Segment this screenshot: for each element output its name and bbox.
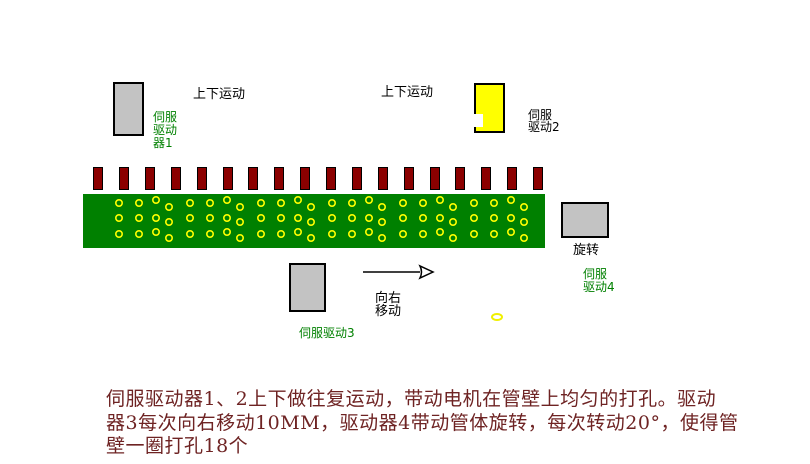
- stray-oval-mark: [491, 313, 503, 321]
- drill-hole: [437, 215, 443, 221]
- drill-hole: [349, 231, 355, 237]
- drill-hole: [153, 215, 159, 221]
- drill-bit-bar: [93, 167, 103, 190]
- drill-hole: [295, 215, 301, 221]
- drill-hole: [237, 204, 243, 210]
- drill-hole: [521, 204, 527, 210]
- servo4-name-label: 伺服 驱动4: [583, 268, 615, 294]
- drill-hole: [207, 200, 213, 206]
- drill-hole: [420, 231, 426, 237]
- drill-hole: [258, 231, 264, 237]
- drill-hole: [207, 231, 213, 237]
- drill-hole: [224, 215, 230, 221]
- description-text: 伺服驱动器1、2上下做往复运动，带动电机在管壁上均匀的打孔。驱动 器3每次向右移…: [106, 388, 746, 459]
- drill-hole: [366, 215, 372, 221]
- drill-hole: [116, 231, 122, 237]
- drill-hole: [308, 219, 314, 225]
- drill-hole: [166, 219, 172, 225]
- drill-hole: [166, 235, 172, 241]
- drill-bit-bar: [223, 167, 233, 190]
- drill-hole: [136, 231, 142, 237]
- drill-hole: [379, 204, 385, 210]
- drill-hole: [116, 215, 122, 221]
- drill-hole: [400, 200, 406, 206]
- drill-hole: [116, 200, 122, 206]
- drill-hole: [366, 229, 372, 235]
- servo3-name-label: 伺服驱动3: [299, 327, 355, 340]
- drill-hole: [329, 215, 335, 221]
- drill-hole: [278, 200, 284, 206]
- drill-bit-bar: [455, 167, 465, 190]
- drill-hole: [437, 197, 443, 203]
- drill-hole: [420, 200, 426, 206]
- drill-hole: [237, 235, 243, 241]
- drill-hole: [207, 215, 213, 221]
- drill-hole: [187, 215, 193, 221]
- servo3-motor-box: [289, 263, 326, 312]
- drill-hole: [508, 215, 514, 221]
- drill-hole: [366, 197, 372, 203]
- drill-hole: [349, 215, 355, 221]
- drill-bit-bar: [274, 167, 284, 190]
- drill-hole: [450, 219, 456, 225]
- drill-bit-bar: [430, 167, 440, 190]
- drill-hole: [450, 235, 456, 241]
- drill-hole: [308, 235, 314, 241]
- drill-hole: [379, 235, 385, 241]
- drill-bit-bar: [352, 167, 362, 190]
- pipe-wall-board: [83, 194, 545, 248]
- drill-hole: [258, 215, 264, 221]
- drill-hole: [379, 219, 385, 225]
- drill-hole: [136, 200, 142, 206]
- drill-hole: [224, 197, 230, 203]
- drill-hole: [187, 200, 193, 206]
- drill-bit-bar: [171, 167, 181, 190]
- diagram-canvas: 上下运动 伺服 驱动 器1 上下运动 伺服 驱动2 旋转 伺服 驱动4 向右 移…: [0, 0, 810, 464]
- drill-hole: [187, 231, 193, 237]
- drill-bit-bar: [145, 167, 155, 190]
- drill-hole: [295, 229, 301, 235]
- drill-hole: [420, 215, 426, 221]
- drill-hole: [491, 231, 497, 237]
- drill-hole: [166, 204, 172, 210]
- drill-bit-bar: [197, 167, 207, 190]
- drill-hole: [153, 229, 159, 235]
- drill-hole: [471, 200, 477, 206]
- drill-hole: [521, 235, 527, 241]
- drill-bit-bar: [404, 167, 414, 190]
- drill-bit-bar: [326, 167, 336, 190]
- servo3-motion-label: 向右 移动: [375, 292, 401, 318]
- drill-hole: [258, 200, 264, 206]
- servo4-motor-box: [561, 202, 609, 238]
- drill-hole: [471, 215, 477, 221]
- drill-hole: [224, 229, 230, 235]
- servo4-motion-label: 旋转: [573, 244, 599, 257]
- drill-bit-bar: [507, 167, 517, 190]
- drill-hole: [153, 197, 159, 203]
- drill-hole: [400, 215, 406, 221]
- drill-hole: [295, 197, 301, 203]
- drill-bit-bar: [300, 167, 310, 190]
- drill-hole: [471, 231, 477, 237]
- drill-hole: [278, 231, 284, 237]
- drilled-holes-pattern: [83, 194, 545, 248]
- drill-hole: [437, 229, 443, 235]
- drill-hole: [278, 215, 284, 221]
- drill-hole: [308, 204, 314, 210]
- drill-hole: [450, 204, 456, 210]
- drill-bit-bar: [481, 167, 491, 190]
- drill-hole: [491, 200, 497, 206]
- drill-hole: [521, 219, 527, 225]
- drill-hole: [136, 215, 142, 221]
- drill-hole: [329, 231, 335, 237]
- drill-hole: [508, 229, 514, 235]
- drill-bit-bar: [248, 167, 258, 190]
- drill-hole: [237, 219, 243, 225]
- drill-hole: [349, 200, 355, 206]
- drill-hole: [491, 215, 497, 221]
- drill-bit-bar: [119, 167, 129, 190]
- move-right-arrow: [360, 260, 438, 284]
- drill-hole: [400, 231, 406, 237]
- drill-hole: [508, 197, 514, 203]
- drill-bit-bar: [533, 167, 543, 190]
- drill-bit-bar: [378, 167, 388, 190]
- drill-hole: [329, 200, 335, 206]
